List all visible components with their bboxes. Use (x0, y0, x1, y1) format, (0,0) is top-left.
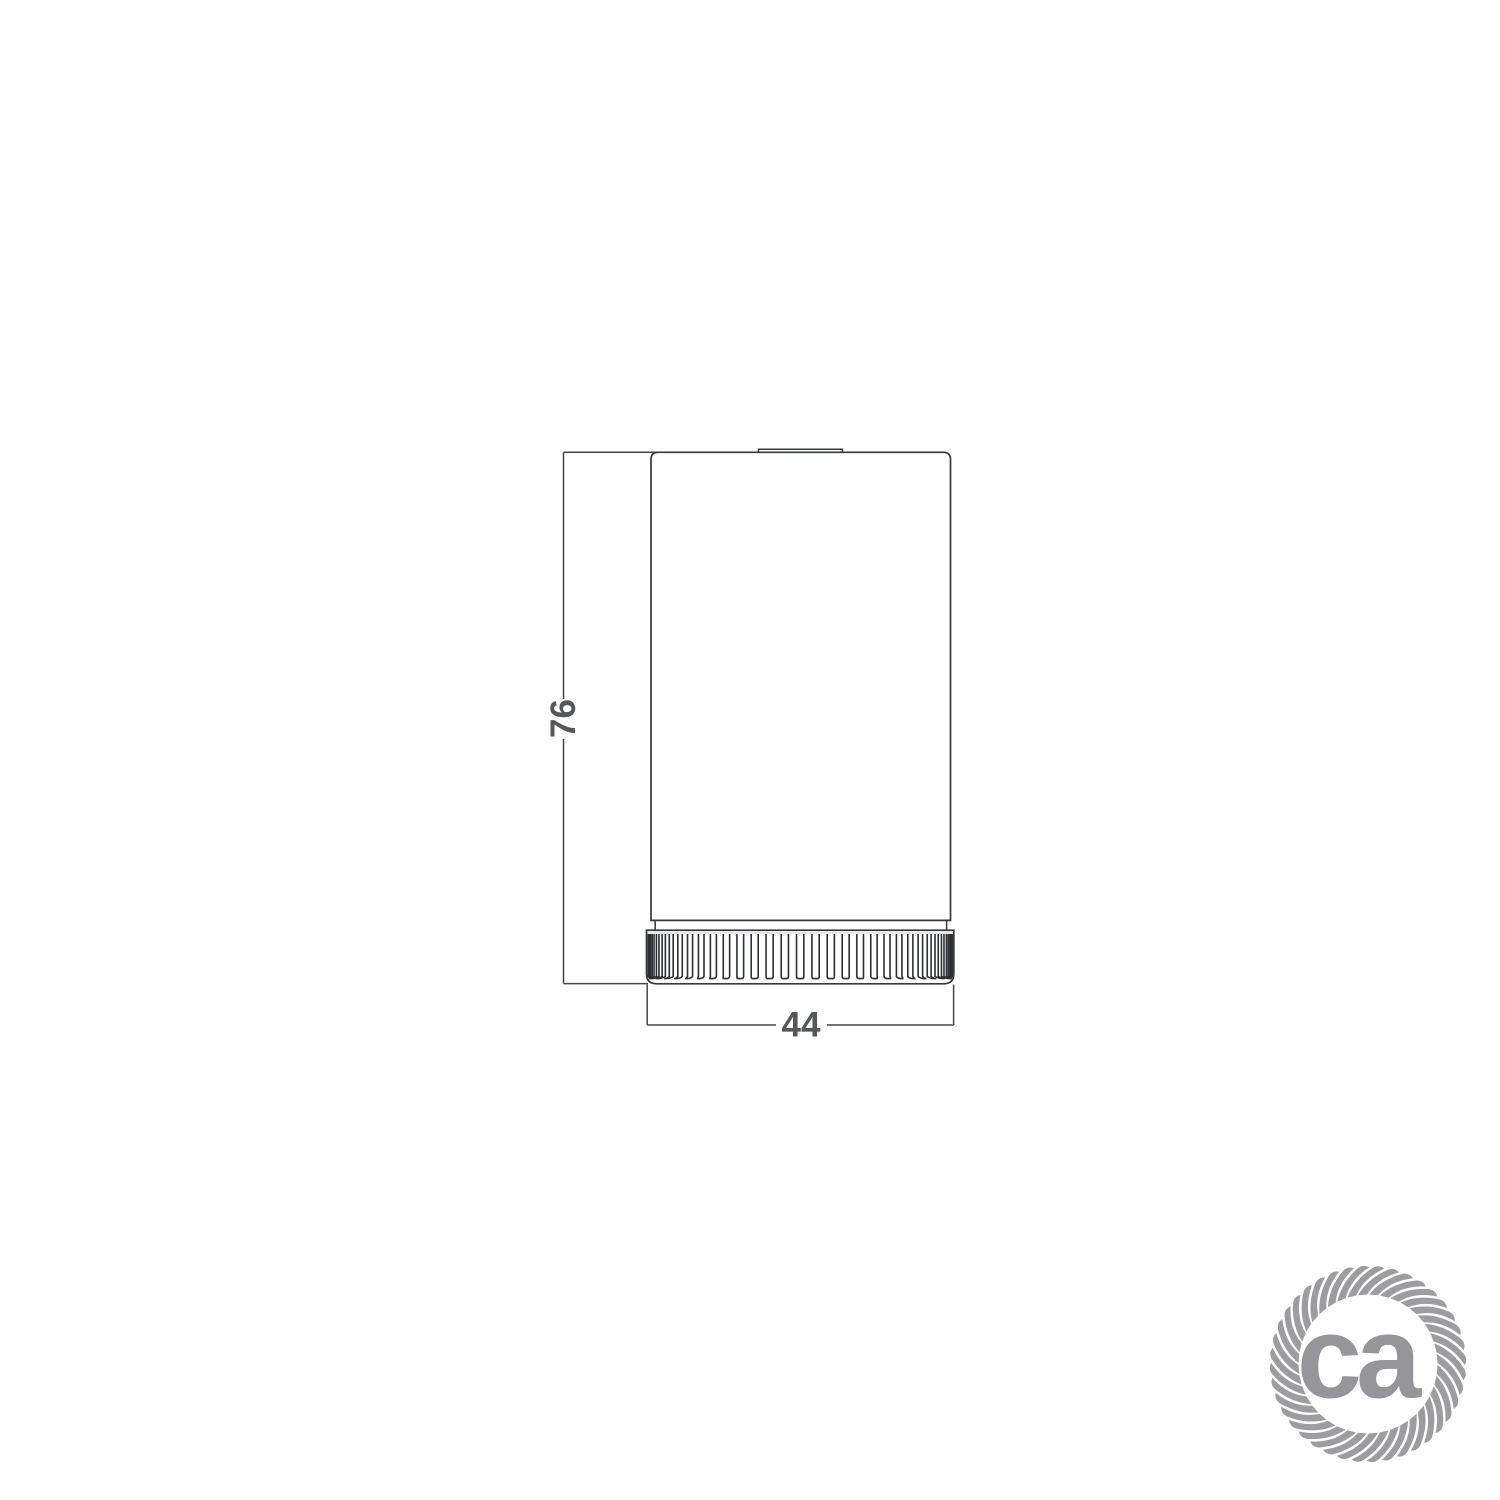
svg-text:ca: ca (1297, 1292, 1422, 1423)
svg-text:44: 44 (782, 1006, 821, 1045)
svg-text:76: 76 (544, 699, 583, 738)
